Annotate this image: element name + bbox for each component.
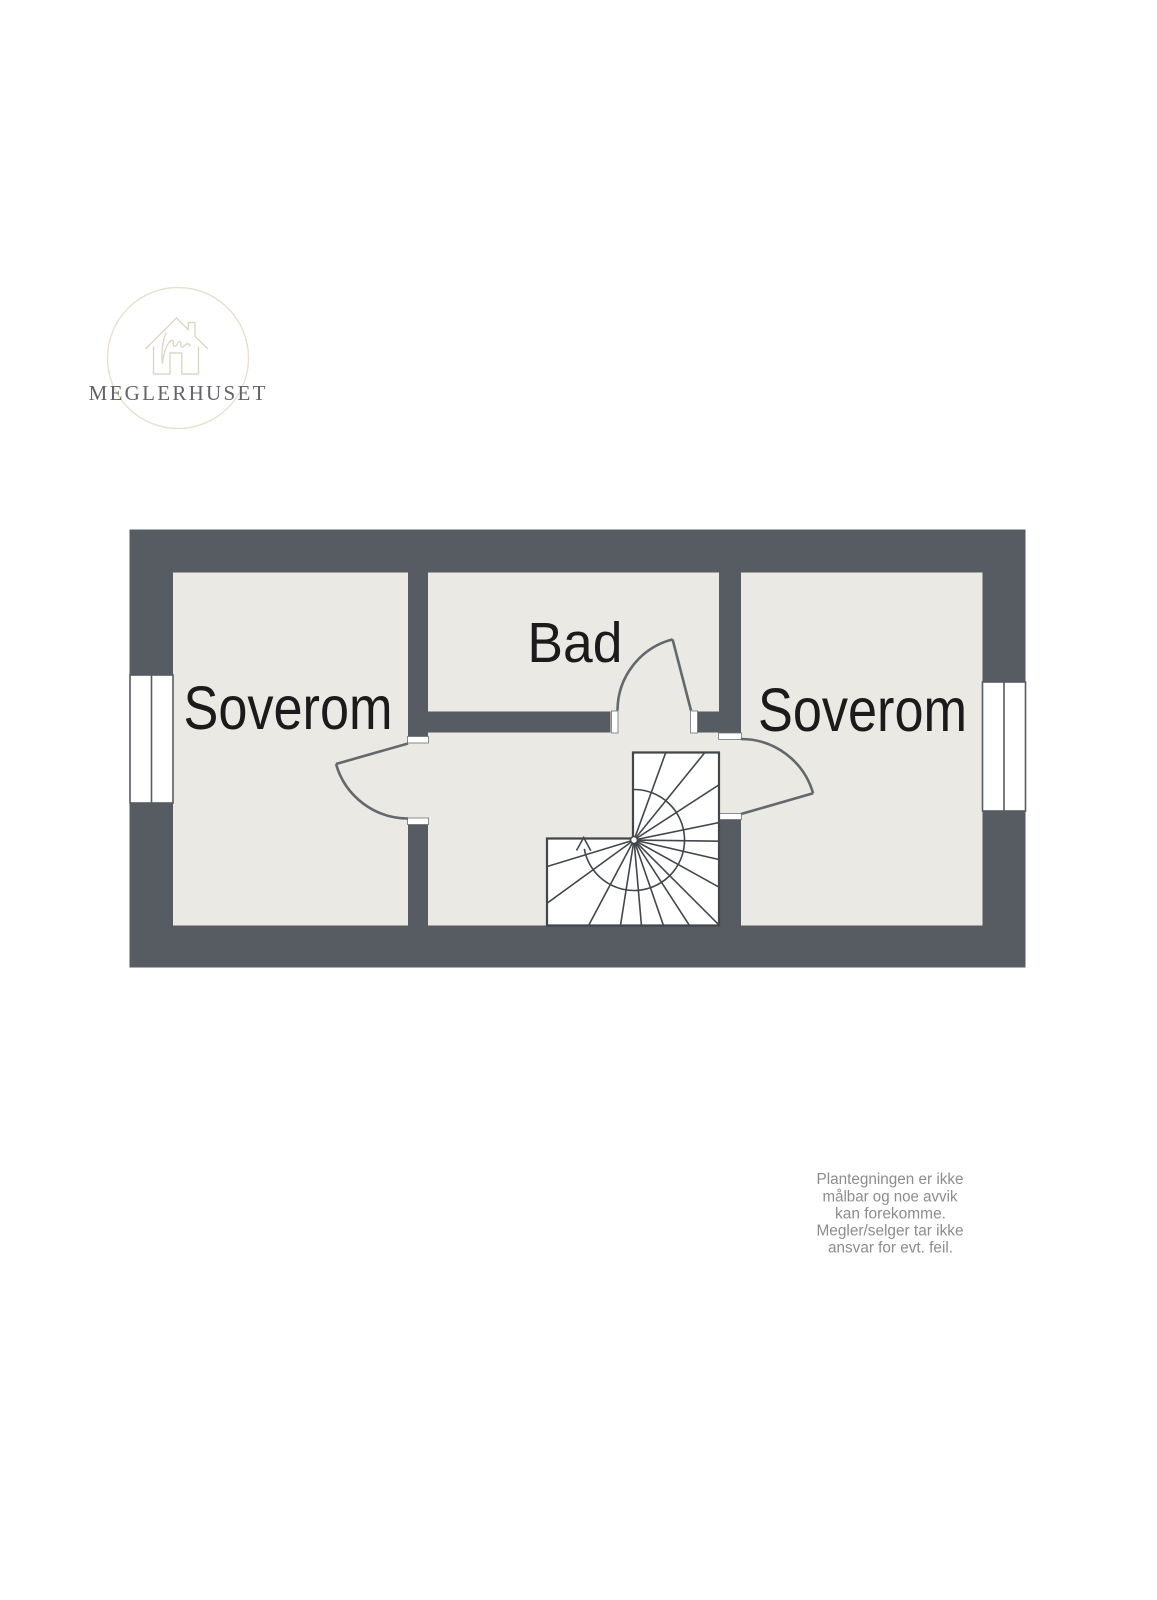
svg-text:Plantegningen er ikke: Plantegningen er ikke	[817, 1171, 964, 1188]
svg-text:ansvar for evt. feil.: ansvar for evt. feil.	[828, 1239, 953, 1256]
svg-text:Megler/selger tar ikke: Megler/selger tar ikke	[817, 1223, 964, 1240]
svg-text:Soverom: Soverom	[758, 676, 967, 744]
svg-text:kan forekomme.: kan forekomme.	[835, 1206, 946, 1223]
svg-text:Soverom: Soverom	[184, 674, 393, 742]
svg-text:MEGLERHUSET: MEGLERHUSET	[89, 381, 266, 405]
svg-text:Bad: Bad	[527, 611, 622, 675]
svg-text:målbar og noe avvik: målbar og noe avvik	[823, 1188, 958, 1205]
